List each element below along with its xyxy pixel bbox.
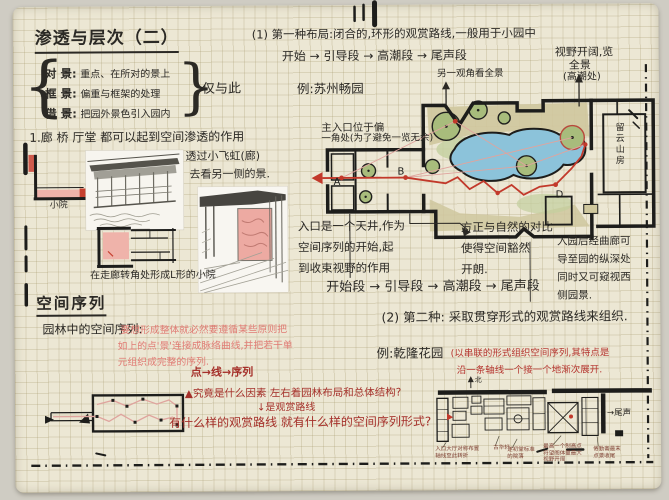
list-item-duijing: 对 景: 重点、在所对的景上 <box>45 67 170 81</box>
l-caption: 在走廊转角处形成L形的小院 <box>90 270 216 282</box>
type2-note-line1: (以串联的形式组织空间序列,其特点是 <box>451 348 610 360</box>
corridor-line3: 同时又可窥视西 <box>557 268 631 286</box>
view-note-line2: 全景 <box>569 59 614 72</box>
list-item-jiejing: 借 景: 把园外景色引入园内 <box>45 107 170 121</box>
contrast-line3: 开朗. <box>461 259 553 281</box>
qianlong-ann1: 入口大厅对称布置轴线至此转折 <box>435 446 479 459</box>
corridor-line1: 入园后经曲廊可 <box>557 232 631 250</box>
entry-note: 主入口位于偏 一角处(为了避免一览无余) <box>321 121 433 145</box>
view-note: 视野开阔,览 全景 (高潮处) <box>555 46 614 83</box>
question1b: ↓是观赏路线 <box>257 402 315 414</box>
term-kuangjing: 框 景: <box>45 87 77 101</box>
contrast-line1: 方正与自然的对比 <box>461 217 553 239</box>
pink-line1: 要想形成整体就必然要遵循某些原则把 <box>120 324 287 336</box>
sequence-main: 开始段 → 引导段 → 高潮段 → 尾声段 <box>326 280 540 296</box>
section-heading: 空间序列 <box>36 295 106 316</box>
tail-label: →尾声 <box>607 409 631 419</box>
pink-line2: 如上的点'景'连接成脉络曲线,并把若干单 <box>118 340 293 352</box>
court-label: 小院 <box>50 201 68 211</box>
route-point-b-label: B <box>397 167 404 178</box>
feihong-line2: 去看另一侧的景. <box>190 168 271 181</box>
notebook-photo: A B D <box>0 0 669 500</box>
tianjing-line3: 到收束视野的作用 <box>298 258 405 280</box>
l-shape-diagram <box>28 154 91 198</box>
type2-intro: (2) 第二种: 采取贯穿形式的观赏路线来组织. <box>381 309 627 325</box>
desc-kuangjing: 偏重与框架的处理 <box>80 89 160 100</box>
tianjing-line1: 入口是一个天井,作为 <box>298 216 405 238</box>
desc-duijing: 重点、在所对的景上 <box>80 69 170 81</box>
question2: 有什么样的观赏路线 就有什么样的空间序列形式? <box>169 415 431 430</box>
entrance-arrow <box>312 172 323 184</box>
notebook-page: A B D <box>0 0 669 500</box>
contrast-line2: 使得空间豁然 <box>461 238 553 260</box>
route-point-d-label: D <box>556 190 564 201</box>
l-courtyard-diagram <box>97 228 176 266</box>
route-point-a-label: A <box>334 177 341 188</box>
contrast-note: 方正与自然的对比 使得空间豁然 开朗. <box>461 217 553 281</box>
type1-sequence-top: 开始 → 引导段 → 高潮段 → 尾声段 <box>282 49 467 64</box>
corridor-note: 入园后经曲廊可 导至园的纵深处 同时又可窥视西 侧园景. <box>557 232 631 304</box>
angle-note: 另一观角看全景 <box>437 69 504 80</box>
bridge-sketch <box>85 150 183 231</box>
corridor-line4: 侧园景. <box>557 286 631 304</box>
question1: ▲究竟是什么因素 左右着园林布局和总体结构? <box>185 387 402 400</box>
feihong-line1: 透过小飞虹(廊) <box>185 150 260 163</box>
type2-example: 例:乾隆花园 <box>377 346 444 361</box>
qianlong-rooms <box>437 395 598 441</box>
north-label: 北 <box>475 376 482 384</box>
brace-note: 仅与此 <box>202 83 241 98</box>
type1-example: 例:苏州畅园 <box>297 82 364 97</box>
desc-jiejing: 把园外景色引入园内 <box>80 109 170 121</box>
term-jiejing: 借 景: <box>45 107 77 121</box>
qianlong-ann3: 遂初堂标准的院落 <box>507 447 535 460</box>
qianlong-ann5: 倦勤斋最末点景收尾 <box>593 446 621 459</box>
list-item-kuangjing: 框 景: 偏重与框架的处理 <box>45 87 160 101</box>
type1-intro: (1) 第一种布局:闭合的,环形的观赏路线,一般用于小园中 <box>252 27 536 42</box>
qianlong-ann4: 最高一个制高点符望阁体量最大视野开阔 <box>543 443 582 463</box>
point-line: 点→线→序列 <box>191 366 254 379</box>
view-note-line1: 视野开阔,览 <box>555 46 614 59</box>
view-note-line3: (高潮处) <box>563 72 614 84</box>
route-diagram <box>45 395 183 432</box>
corridor-line2: 导至园的纵深处 <box>557 250 631 268</box>
tianjing-note: 入口是一个天井,作为 空间序列的开始,起 到收束视野的作用 <box>298 216 406 280</box>
hall-label: 留云山房 <box>613 122 624 166</box>
term-duijing: 对 景: <box>45 67 77 81</box>
penetration-line: 1.廊 桥 厅堂 都可以起到空间渗透的作用 <box>29 131 244 146</box>
entry-note-line2: 一角处(为了避免一览无余) <box>321 133 433 145</box>
tianjing-line2: 空间序列的开始,起 <box>298 237 405 259</box>
